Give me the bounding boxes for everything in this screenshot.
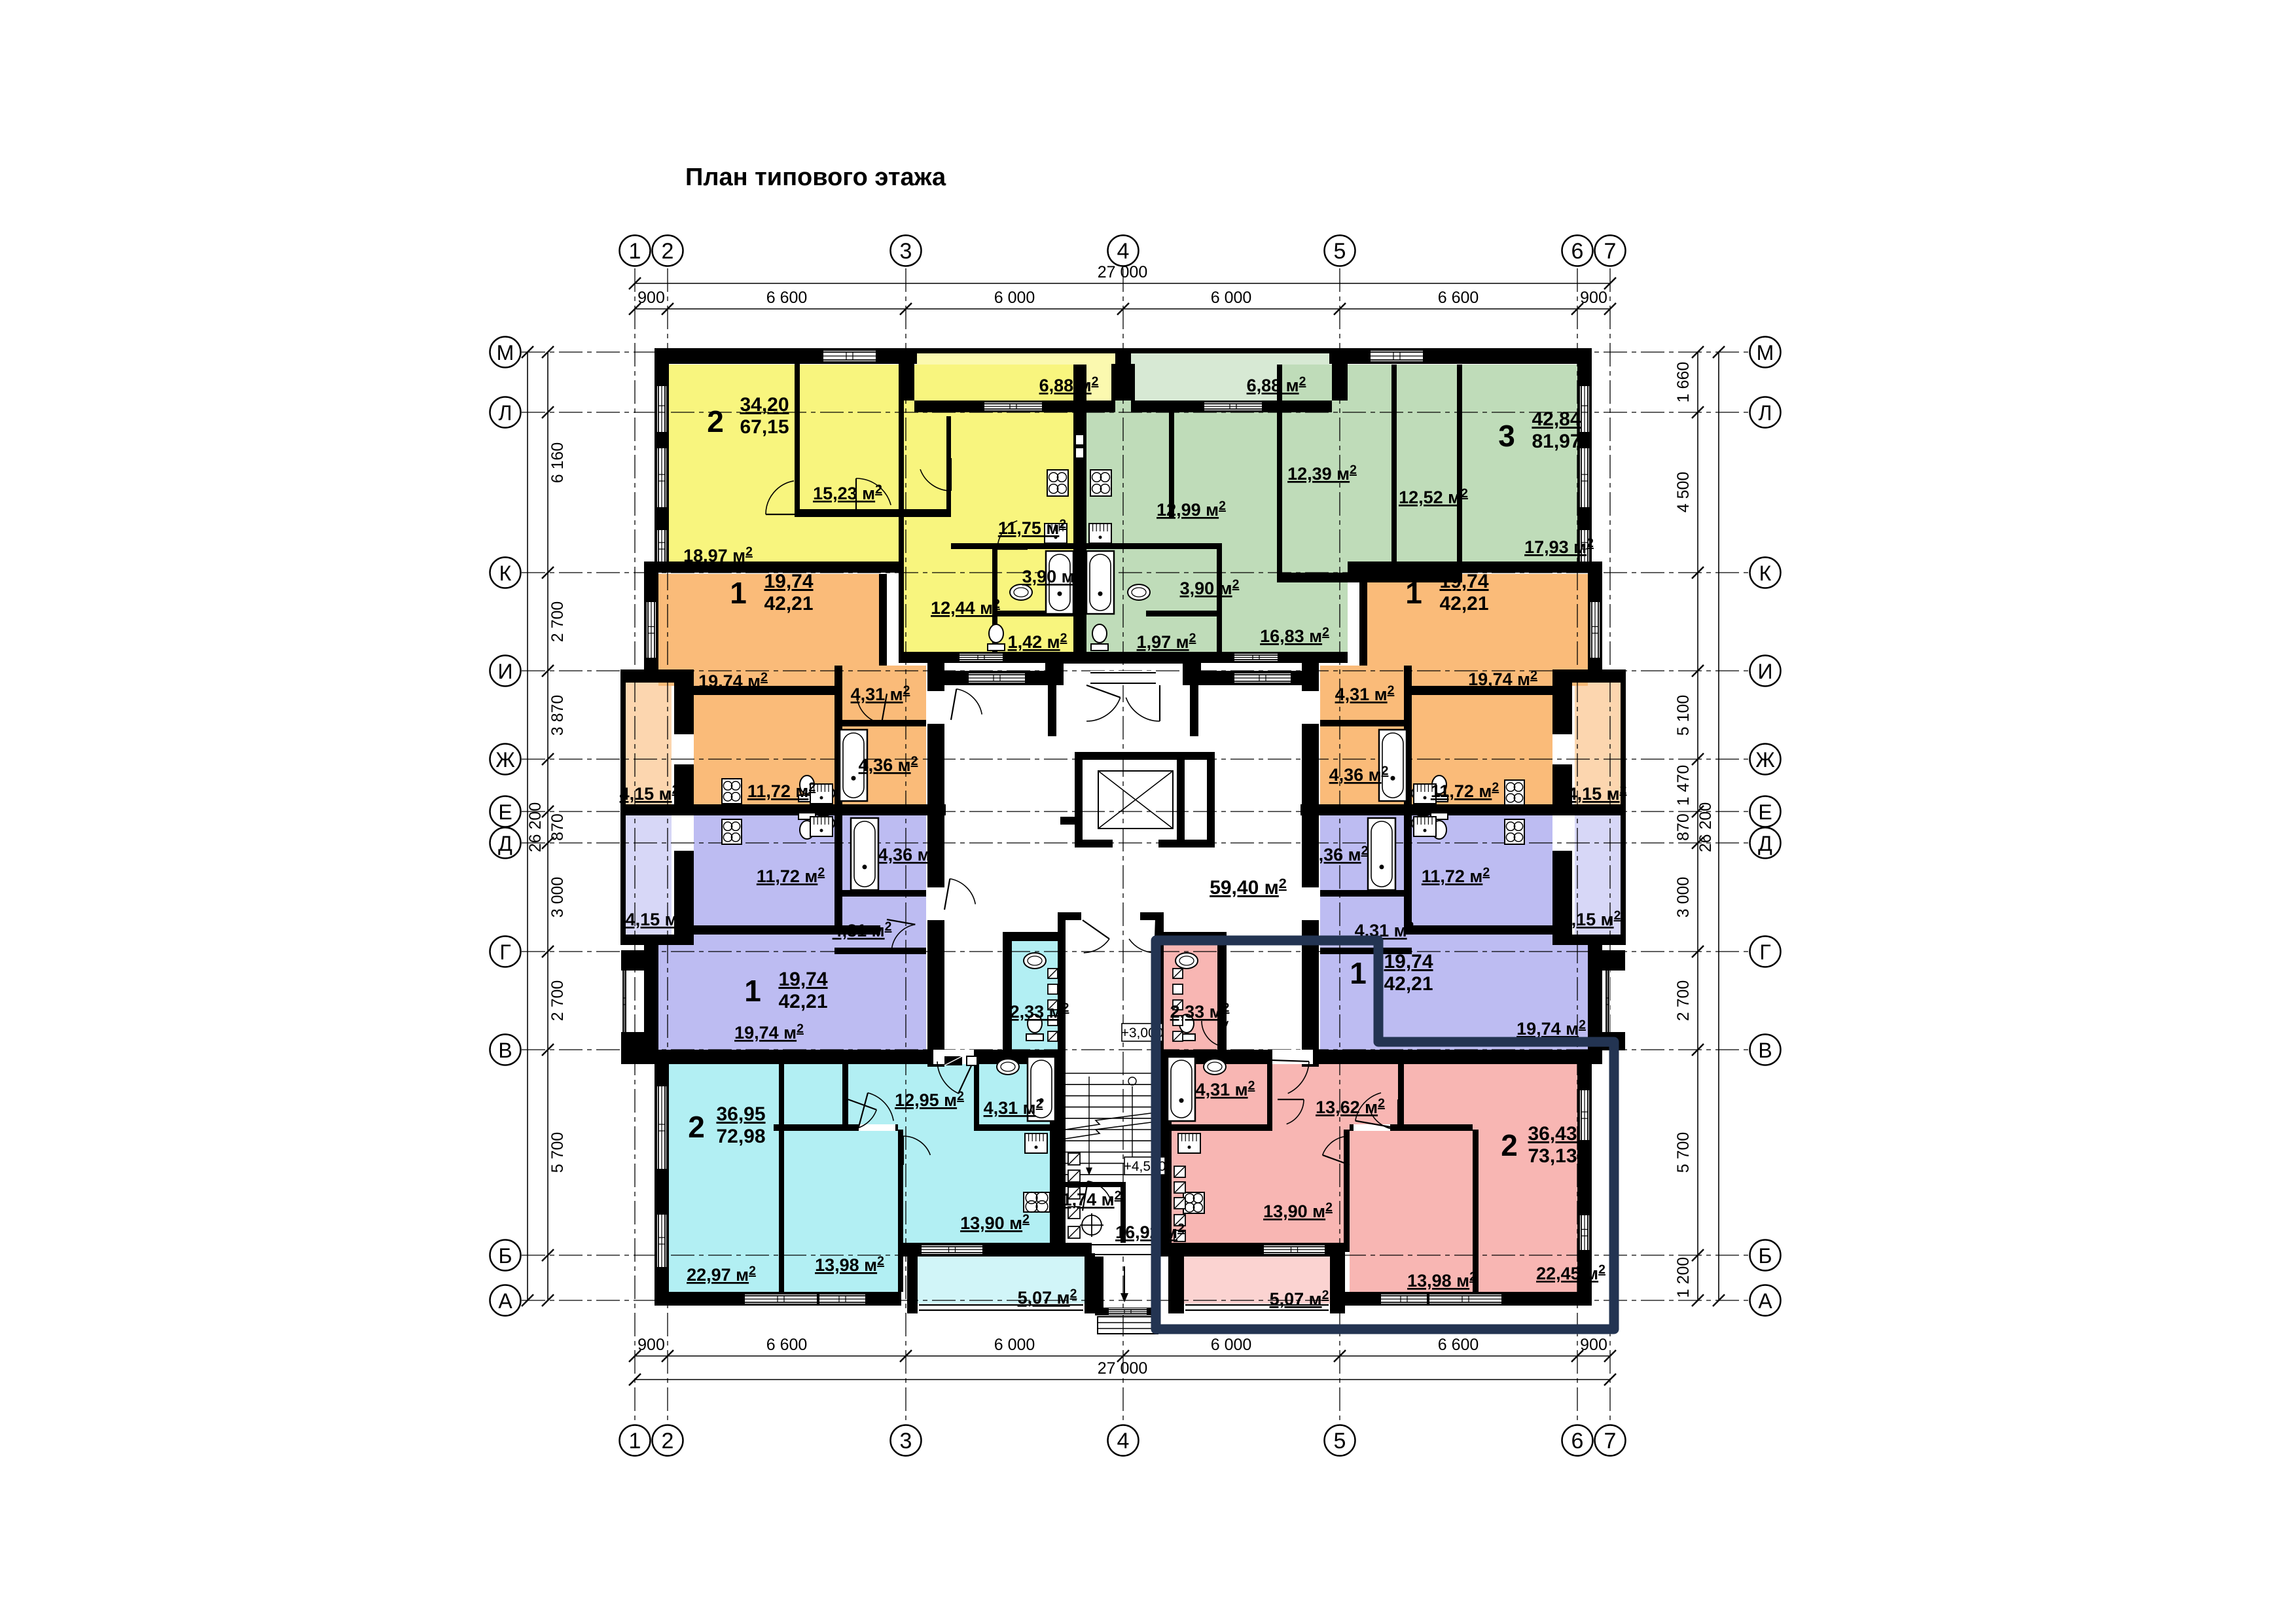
svg-text:4,36 м2: 4,36 м2: [1309, 844, 1369, 865]
svg-text:4,15 м2: 4,15 м2: [620, 783, 679, 804]
svg-text:Б: Б: [1759, 1244, 1772, 1268]
svg-text:4,31 м2: 4,31 м2: [984, 1097, 1043, 1118]
svg-text:3: 3: [900, 1429, 912, 1454]
svg-text:4,36 м2: 4,36 м2: [859, 754, 918, 775]
svg-text:13,90 м2: 13,90 м2: [960, 1212, 1030, 1233]
svg-text:17,93 м2: 17,93 м2: [1524, 536, 1594, 557]
svg-text:2,33 м2: 2,33 м2: [1170, 1001, 1230, 1022]
svg-text:3 000: 3 000: [548, 877, 567, 918]
svg-text:Е: Е: [1758, 800, 1772, 824]
svg-text:5: 5: [1334, 239, 1346, 264]
svg-text:4,31 м2: 4,31 м2: [833, 919, 892, 940]
svg-text:42,21: 42,21: [1384, 973, 1433, 995]
svg-text:11,75 м2: 11,75 м2: [998, 517, 1067, 538]
svg-text:1: 1: [730, 576, 747, 610]
svg-text:6 600: 6 600: [1438, 1336, 1479, 1354]
svg-text:2: 2: [662, 239, 674, 264]
svg-text:6 600: 6 600: [766, 1336, 808, 1354]
svg-text:12,95 м2: 12,95 м2: [895, 1089, 964, 1110]
svg-text:4 500: 4 500: [1674, 472, 1693, 513]
svg-text:А: А: [498, 1289, 512, 1313]
svg-text:М: М: [497, 341, 514, 365]
svg-text:А: А: [1758, 1289, 1772, 1313]
svg-text:6 000: 6 000: [994, 289, 1035, 307]
svg-text:12,39 м2: 12,39 м2: [1287, 463, 1357, 484]
svg-text:13,98 м2: 13,98 м2: [1407, 1270, 1477, 1291]
svg-text:5: 5: [1334, 1429, 1346, 1454]
svg-text:6 160: 6 160: [548, 442, 567, 484]
svg-text:900: 900: [1580, 1336, 1607, 1354]
svg-text:1: 1: [1405, 576, 1422, 610]
svg-text:19,74 м2: 19,74 м2: [1468, 668, 1537, 689]
svg-text:3,90 м2: 3,90 м2: [1180, 577, 1240, 598]
svg-text:870: 870: [548, 813, 567, 841]
svg-text:К: К: [499, 562, 512, 585]
svg-text:900: 900: [1580, 289, 1607, 307]
svg-text:11,72 м2: 11,72 м2: [747, 780, 816, 801]
svg-text:6,88 м2: 6,88 м2: [1247, 374, 1306, 395]
svg-text:900: 900: [637, 1336, 665, 1354]
svg-text:6 000: 6 000: [1211, 289, 1252, 307]
svg-text:2: 2: [707, 404, 724, 438]
svg-text:Ж: Ж: [1755, 748, 1775, 772]
svg-text:7: 7: [1604, 1429, 1617, 1454]
svg-text:6: 6: [1571, 239, 1584, 264]
svg-text:13,62 м2: 13,62 м2: [1316, 1096, 1385, 1117]
svg-text:870: 870: [1674, 813, 1693, 841]
svg-text:2 700: 2 700: [548, 980, 567, 1022]
svg-text:4,15 м2: 4,15 м2: [1562, 908, 1621, 929]
svg-text:2: 2: [1501, 1128, 1518, 1162]
svg-text:И: И: [498, 660, 513, 683]
svg-text:1 470: 1 470: [1674, 765, 1693, 806]
svg-text:3 000: 3 000: [1674, 877, 1693, 918]
svg-text:5,07 м2: 5,07 м2: [1270, 1288, 1329, 1309]
svg-text:6 600: 6 600: [1438, 289, 1479, 307]
svg-text:11,72 м2: 11,72 м2: [1422, 865, 1490, 886]
svg-text:27 000: 27 000: [1098, 1359, 1147, 1378]
svg-text:1,42 м2: 1,42 м2: [1008, 631, 1067, 652]
svg-text:4: 4: [1117, 1429, 1130, 1454]
svg-text:В: В: [498, 1039, 512, 1062]
svg-text:6: 6: [1571, 1429, 1584, 1454]
svg-text:16,92 м2: 16,92 м2: [1115, 1221, 1185, 1242]
svg-text:4,15 м2: 4,15 м2: [626, 908, 685, 929]
svg-text:12,44 м2: 12,44 м2: [931, 597, 1000, 618]
svg-text:4,31 м2: 4,31 м2: [1335, 683, 1395, 704]
svg-text:План типового этажа: План типового этажа: [685, 164, 946, 191]
svg-text:72,98: 72,98: [716, 1126, 765, 1147]
svg-text:4: 4: [1117, 239, 1130, 264]
svg-text:19,74 м2: 19,74 м2: [734, 1022, 804, 1043]
svg-text:6 600: 6 600: [766, 289, 808, 307]
svg-text:73,13: 73,13: [1528, 1145, 1577, 1167]
svg-text:7: 7: [1604, 239, 1617, 264]
svg-text:1 660: 1 660: [1674, 362, 1693, 403]
svg-text:2: 2: [662, 1429, 674, 1454]
svg-text:16,83 м2: 16,83 м2: [1260, 625, 1329, 646]
svg-text:6 000: 6 000: [994, 1336, 1035, 1354]
svg-text:36,95: 36,95: [716, 1103, 765, 1125]
svg-text:2 700: 2 700: [1674, 980, 1693, 1022]
svg-text:19,74: 19,74: [1439, 571, 1488, 592]
svg-text:5,07 м2: 5,07 м2: [1018, 1287, 1077, 1308]
svg-text:81,97: 81,97: [1532, 431, 1581, 452]
svg-text:1: 1: [629, 1429, 641, 1454]
svg-text:1,97 м2: 1,97 м2: [1137, 631, 1196, 652]
svg-text:И: И: [1758, 660, 1773, 683]
svg-text:19,74: 19,74: [778, 969, 827, 990]
svg-text:13,98 м2: 13,98 м2: [815, 1254, 884, 1275]
svg-text:11,72 м2: 11,72 м2: [757, 865, 825, 886]
svg-text:36,43: 36,43: [1528, 1123, 1577, 1145]
svg-text:М: М: [1757, 341, 1774, 365]
svg-text:2,33 м2: 2,33 м2: [1010, 1001, 1069, 1022]
svg-text:4,15 м2: 4,15 м2: [1568, 783, 1627, 804]
svg-text:59,40 м2: 59,40 м2: [1210, 875, 1287, 899]
svg-text:42,21: 42,21: [764, 593, 813, 615]
svg-text:12,99 м2: 12,99 м2: [1157, 499, 1226, 520]
svg-text:1: 1: [629, 239, 641, 264]
svg-text:Д: Д: [1758, 832, 1772, 855]
svg-text:Д: Д: [498, 832, 512, 855]
svg-text:3,90 м2: 3,90 м2: [1022, 565, 1082, 586]
svg-text:4,31 м2: 4,31 м2: [1196, 1079, 1255, 1099]
svg-text:42,21: 42,21: [1439, 593, 1488, 615]
svg-text:19,74 м2: 19,74 м2: [1516, 1018, 1586, 1039]
svg-text:1: 1: [1350, 956, 1367, 990]
svg-text:2 700: 2 700: [548, 601, 567, 643]
svg-text:22,45 м2: 22,45 м2: [1536, 1262, 1605, 1283]
svg-text:4,31 м2: 4,31 м2: [851, 683, 910, 704]
svg-text:22,97 м2: 22,97 м2: [687, 1264, 756, 1285]
svg-text:6,88 м2: 6,88 м2: [1039, 374, 1099, 395]
svg-text:3: 3: [900, 239, 912, 264]
svg-text:Г: Г: [499, 940, 511, 964]
svg-text:1: 1: [744, 974, 761, 1008]
svg-text:Ж: Ж: [495, 748, 515, 772]
svg-text:Л: Л: [1759, 401, 1772, 425]
svg-text:19,74: 19,74: [764, 571, 813, 592]
svg-text:19,74 м2: 19,74 м2: [698, 670, 768, 691]
svg-text:В: В: [1758, 1039, 1772, 1062]
svg-text:26 200: 26 200: [1696, 802, 1715, 852]
svg-text:19,74: 19,74: [1384, 951, 1433, 972]
svg-text:5 100: 5 100: [1674, 695, 1693, 736]
svg-text:2: 2: [688, 1110, 705, 1144]
svg-text:1 200: 1 200: [1674, 1257, 1693, 1298]
svg-text:5 700: 5 700: [1674, 1132, 1693, 1173]
svg-text:13,90 м2: 13,90 м2: [1263, 1200, 1333, 1221]
svg-text:34,20: 34,20: [740, 394, 789, 416]
svg-text:6 000: 6 000: [1211, 1336, 1252, 1354]
svg-text:Б: Б: [499, 1244, 512, 1268]
svg-text:12,52 м2: 12,52 м2: [1399, 486, 1468, 507]
svg-text:К: К: [1759, 562, 1772, 585]
svg-text:3: 3: [1498, 419, 1515, 453]
svg-text:26 200: 26 200: [526, 802, 545, 852]
svg-text:15,23 м2: 15,23 м2: [813, 482, 882, 503]
svg-text:42,84: 42,84: [1532, 408, 1581, 430]
svg-text:4,36 м2: 4,36 м2: [1329, 764, 1389, 785]
svg-text:Г: Г: [1759, 940, 1770, 964]
svg-text:3 870: 3 870: [548, 695, 567, 736]
svg-text:11,72 м2: 11,72 м2: [1431, 780, 1499, 801]
svg-text:Л: Л: [499, 401, 512, 425]
svg-text:4,36 м2: 4,36 м2: [878, 844, 938, 865]
svg-text:42,21: 42,21: [778, 991, 827, 1012]
svg-text:Е: Е: [498, 800, 512, 824]
svg-text:5 700: 5 700: [548, 1132, 567, 1173]
svg-text:67,15: 67,15: [740, 416, 789, 438]
svg-text:1,74 м2: 1,74 м2: [1062, 1188, 1122, 1209]
svg-text:18,97 м2: 18,97 м2: [683, 544, 753, 565]
svg-text:900: 900: [637, 289, 665, 307]
